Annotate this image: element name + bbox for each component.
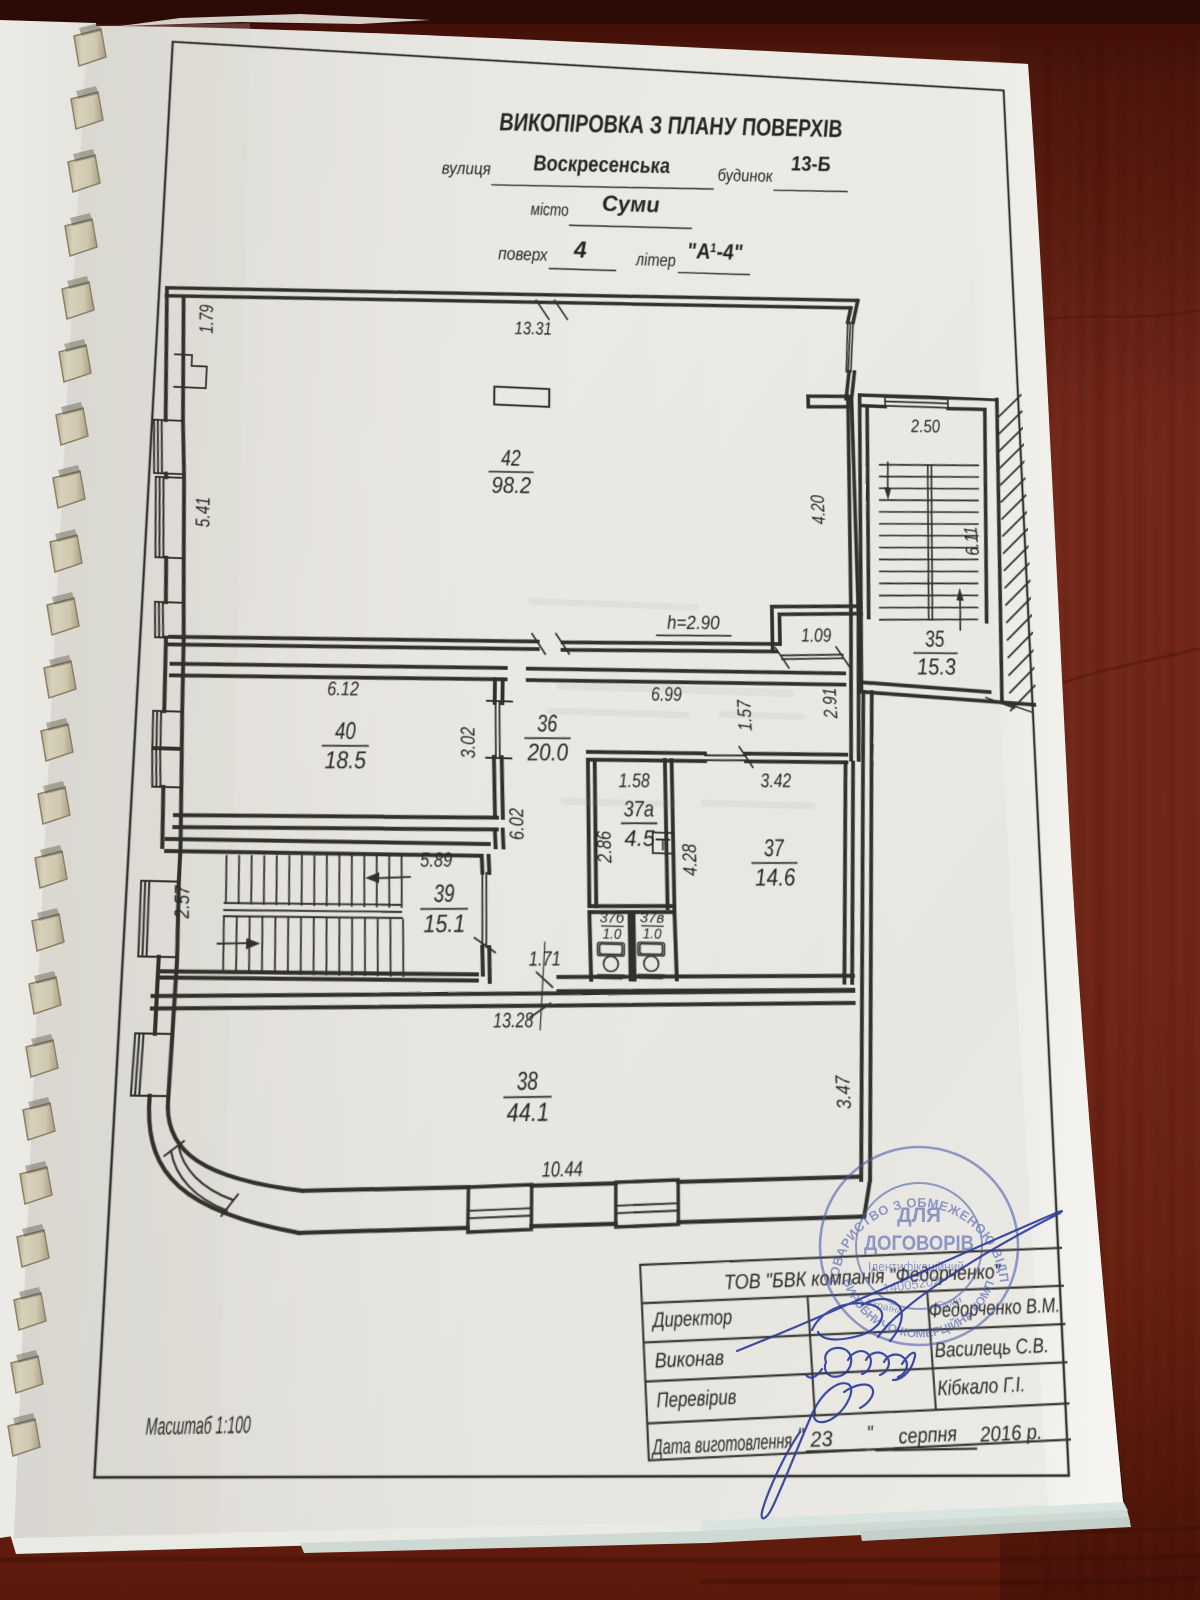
svg-text:ДЛЯ: ДЛЯ <box>897 1204 941 1227</box>
svg-text:Ідентифікаційний: Ідентифікаційний <box>868 1260 964 1274</box>
svg-text:ВИРОБНИЧО-КОМЕРЦІЙНА КОМПАНІЯ: ВИРОБНИЧО-КОМЕРЦІЙНА КОМПАНІЯ <box>0 0 997 1341</box>
svg-text:ТОВАРИСТВО З ОБМЕЖЕНОЮ ВІДПОВІ: ТОВАРИСТВО З ОБМЕЖЕНОЮ ВІДПОВІДАЛЬНІСТЮ <box>0 0 1012 1286</box>
svg-text:ДОГОВОРІВ: ДОГОВОРІВ <box>864 1232 974 1255</box>
svg-text:Суми: Суми <box>935 1294 963 1313</box>
